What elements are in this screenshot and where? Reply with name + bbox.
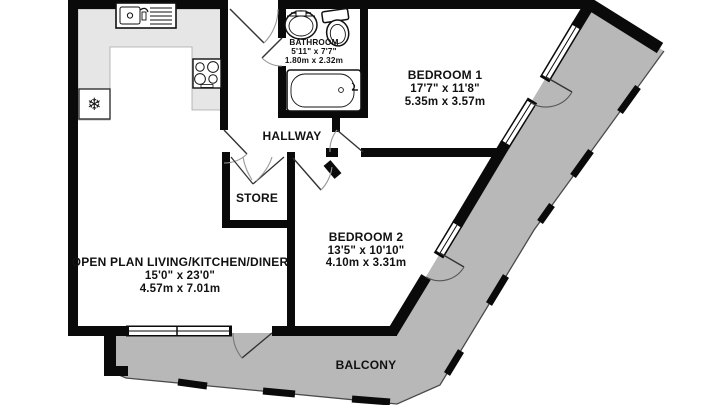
- wall-segment: [287, 152, 295, 336]
- bedroom2-imperial: 13'5" x 10'10": [328, 245, 405, 257]
- basin-icon: [285, 11, 317, 39]
- wall-segment: [332, 118, 340, 132]
- wall-segment: [326, 148, 338, 157]
- fridge-symbol: ❄: [87, 95, 101, 114]
- entrance-door: [230, 9, 278, 43]
- kitchen-sink-icon: [116, 3, 176, 28]
- living-name: OPEN PLAN LIVING/KITCHEN/DINER: [72, 255, 289, 269]
- store-label: STORE: [236, 191, 278, 205]
- bathtub-icon: [287, 70, 361, 111]
- bedroom1-metric: 5.35m x 3.57m: [405, 96, 486, 108]
- wall-segment: [361, 148, 502, 157]
- bedroom2-metric: 4.10m x 3.31m: [326, 257, 407, 269]
- room-label-bathroom: BATHROOM 5'11" x 7'7" 1.80m x 2.32m: [285, 38, 343, 65]
- hob-icon: [193, 59, 221, 88]
- wall-segment: [327, 163, 338, 176]
- wall-segment: [68, 0, 78, 336]
- balcony-label: BALCONY: [336, 358, 397, 372]
- bedroom2-door: [293, 158, 332, 190]
- fridge-icon: ❄: [79, 89, 110, 119]
- room-label-bedroom2: BEDROOM 2 13'5" x 10'10" 4.10m x 3.31m: [326, 230, 407, 269]
- window: [126, 326, 232, 337]
- bathroom-metric: 1.80m x 2.32m: [285, 56, 343, 65]
- living-imperial: 15'0" x 23'0": [145, 270, 215, 282]
- bedroom1-imperial: 17'7" x 11'8": [410, 83, 480, 95]
- bedroom2-name: BEDROOM 2: [329, 230, 404, 244]
- wall-segment: [222, 220, 295, 228]
- wall-segment: [68, 326, 130, 336]
- bedroom1-name: BEDROOM 1: [408, 68, 483, 82]
- wall-segment: [295, 326, 397, 336]
- wall-segment: [104, 366, 128, 376]
- floor-plan: ❄ BATHROOM 5'11: [0, 0, 720, 405]
- hallway-label: HALLWAY: [263, 129, 322, 143]
- living-metric: 4.57m x 7.01m: [140, 283, 221, 295]
- bathroom-name: BATHROOM: [289, 38, 338, 47]
- wall-segment: [278, 0, 592, 9]
- floor-plan-canvas: ❄ BATHROOM 5'11: [0, 0, 720, 405]
- bathroom-imperial: 5'11" x 7'7": [291, 47, 336, 56]
- store-doors: [231, 157, 284, 184]
- room-label-bedroom1: BEDROOM 1 17'7" x 11'8" 5.35m x 3.57m: [405, 68, 486, 108]
- room-label-living: OPEN PLAN LIVING/KITCHEN/DINER 15'0" x 2…: [72, 255, 289, 295]
